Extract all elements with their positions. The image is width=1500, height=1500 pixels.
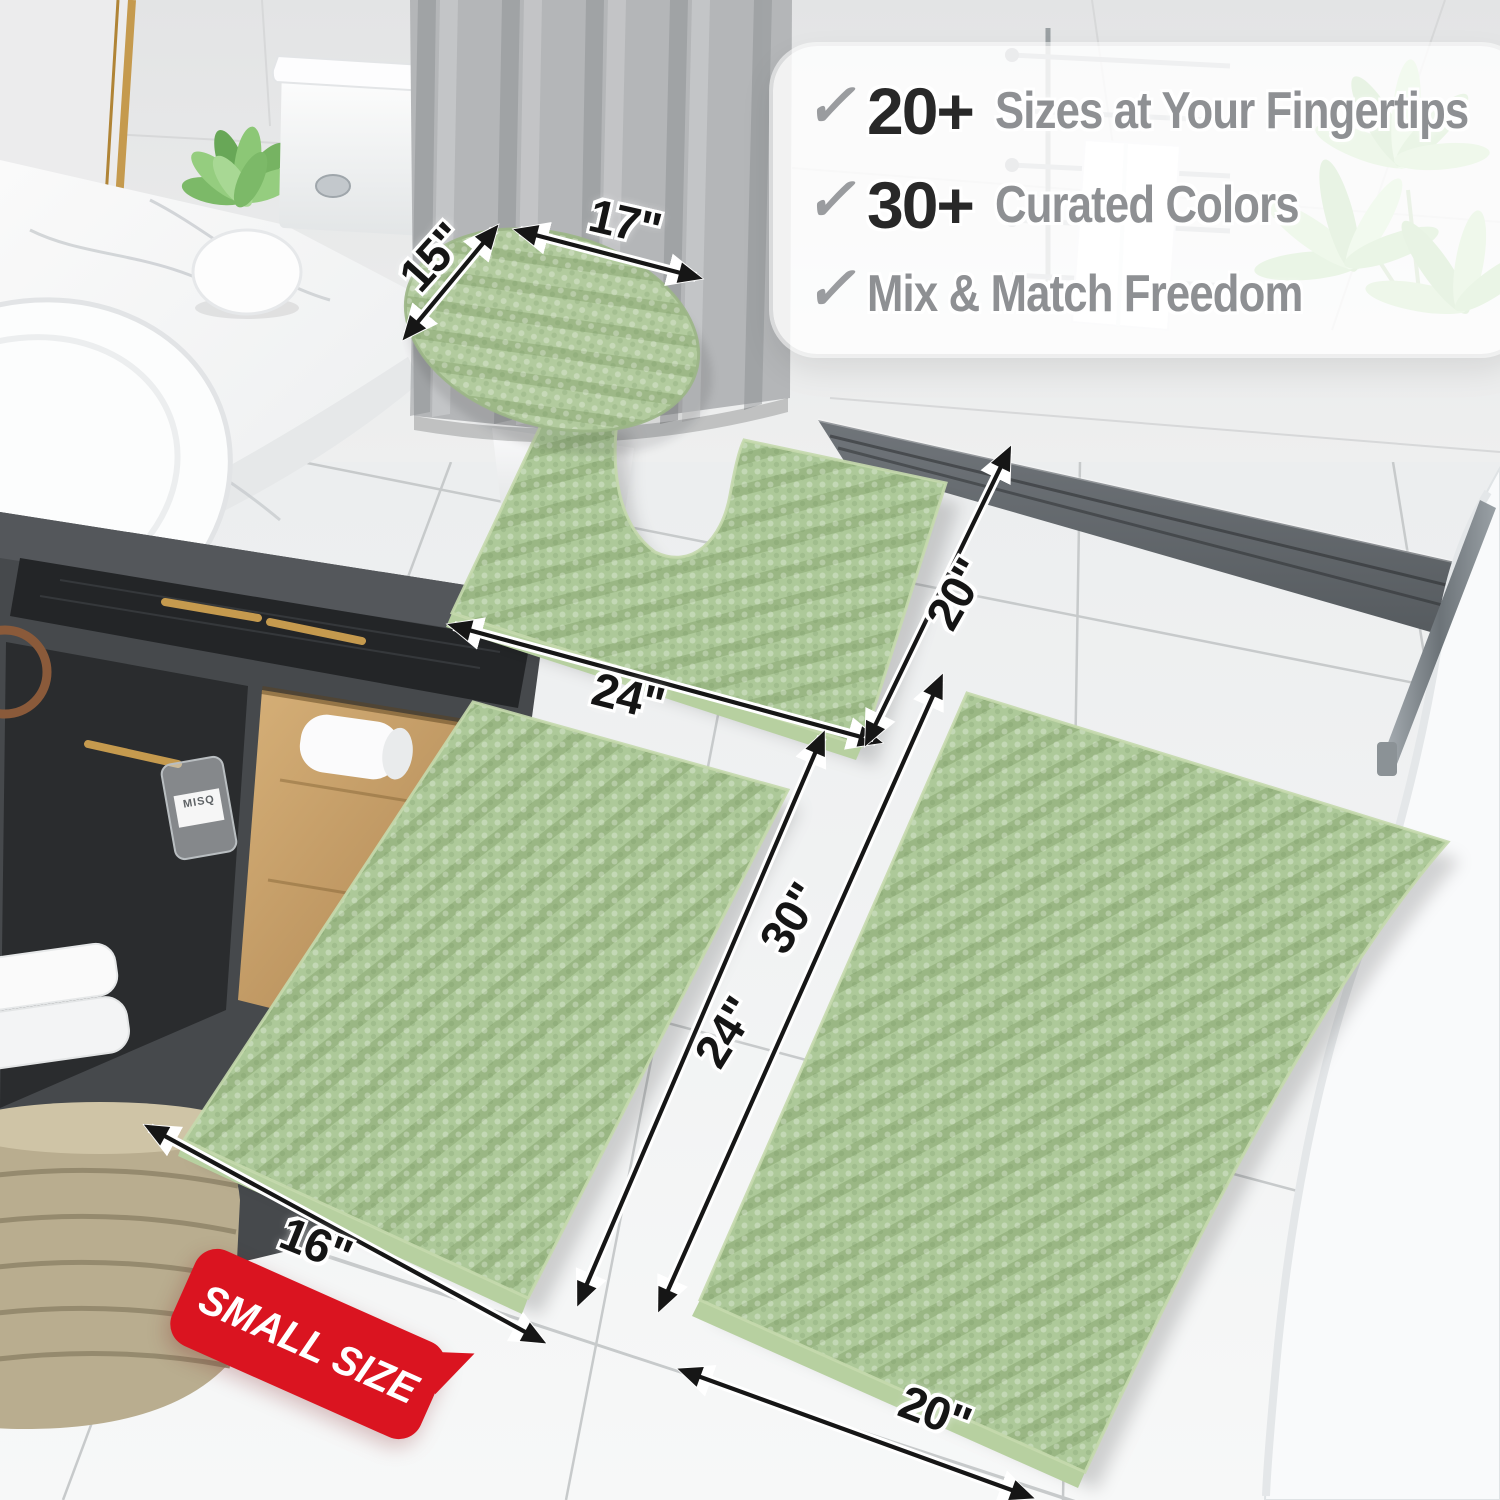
feature-count: 20+	[867, 73, 973, 149]
feature-row-colors: ✓ 30+ Curated Colors	[805, 158, 1500, 252]
checkmark-icon: ✓	[805, 71, 867, 141]
feature-row-mix-match: ✓ Mix & Match Freedom	[805, 252, 1500, 336]
folded-towels	[0, 941, 132, 1072]
flush-button	[316, 175, 350, 197]
feature-count: 30+	[867, 167, 973, 243]
feature-label: Mix & Match Freedom	[867, 264, 1302, 324]
product-image: ✓ 20+ Sizes at Your Fingertips ✓ 30+ Cur…	[0, 0, 1500, 1500]
checkmark-icon: ✓	[805, 165, 867, 235]
checkmark-icon: ✓	[805, 254, 867, 324]
feature-row-sizes: ✓ 20+ Sizes at Your Fingertips	[805, 64, 1500, 158]
feature-callout-panel: ✓ 20+ Sizes at Your Fingertips ✓ 30+ Cur…	[773, 46, 1500, 354]
feature-label: Sizes at Your Fingertips	[995, 81, 1468, 141]
plant-pot	[193, 230, 301, 314]
feature-label: Curated Colors	[995, 175, 1299, 235]
